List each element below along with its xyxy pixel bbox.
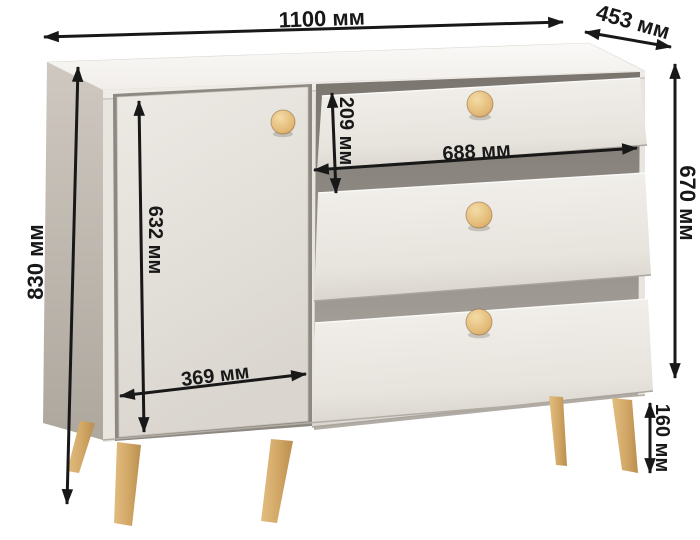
dim-depth-label: 453 мм [593, 0, 672, 44]
dimension-diagram: 1100 мм 453 мм 830 мм 670 мм 209 мм 688 … [0, 0, 700, 540]
drawer-1-knob [467, 91, 493, 120]
dim-leg-height-label: 160 мм [651, 404, 673, 473]
leg-back-right [549, 396, 567, 466]
door-knob [271, 110, 295, 137]
drawer-3-knob [466, 309, 492, 338]
drawer-2-knob [466, 202, 492, 231]
commode-diagram-canvas: 1100 мм 453 мм 830 мм 670 мм 209 мм 688 … [0, 0, 700, 540]
dim-drawer-height-label: 209 мм [335, 97, 357, 166]
dim-overall-width-label: 1100 мм [278, 5, 365, 33]
dim-door-height-label: 632 мм [144, 206, 166, 275]
dim-body-height-label: 670 мм [675, 165, 700, 240]
leg-front-left [114, 442, 141, 526]
dim-overall-height-label: 830 мм [23, 224, 48, 299]
leg-middle [261, 439, 293, 523]
leg-front-right [612, 398, 638, 473]
